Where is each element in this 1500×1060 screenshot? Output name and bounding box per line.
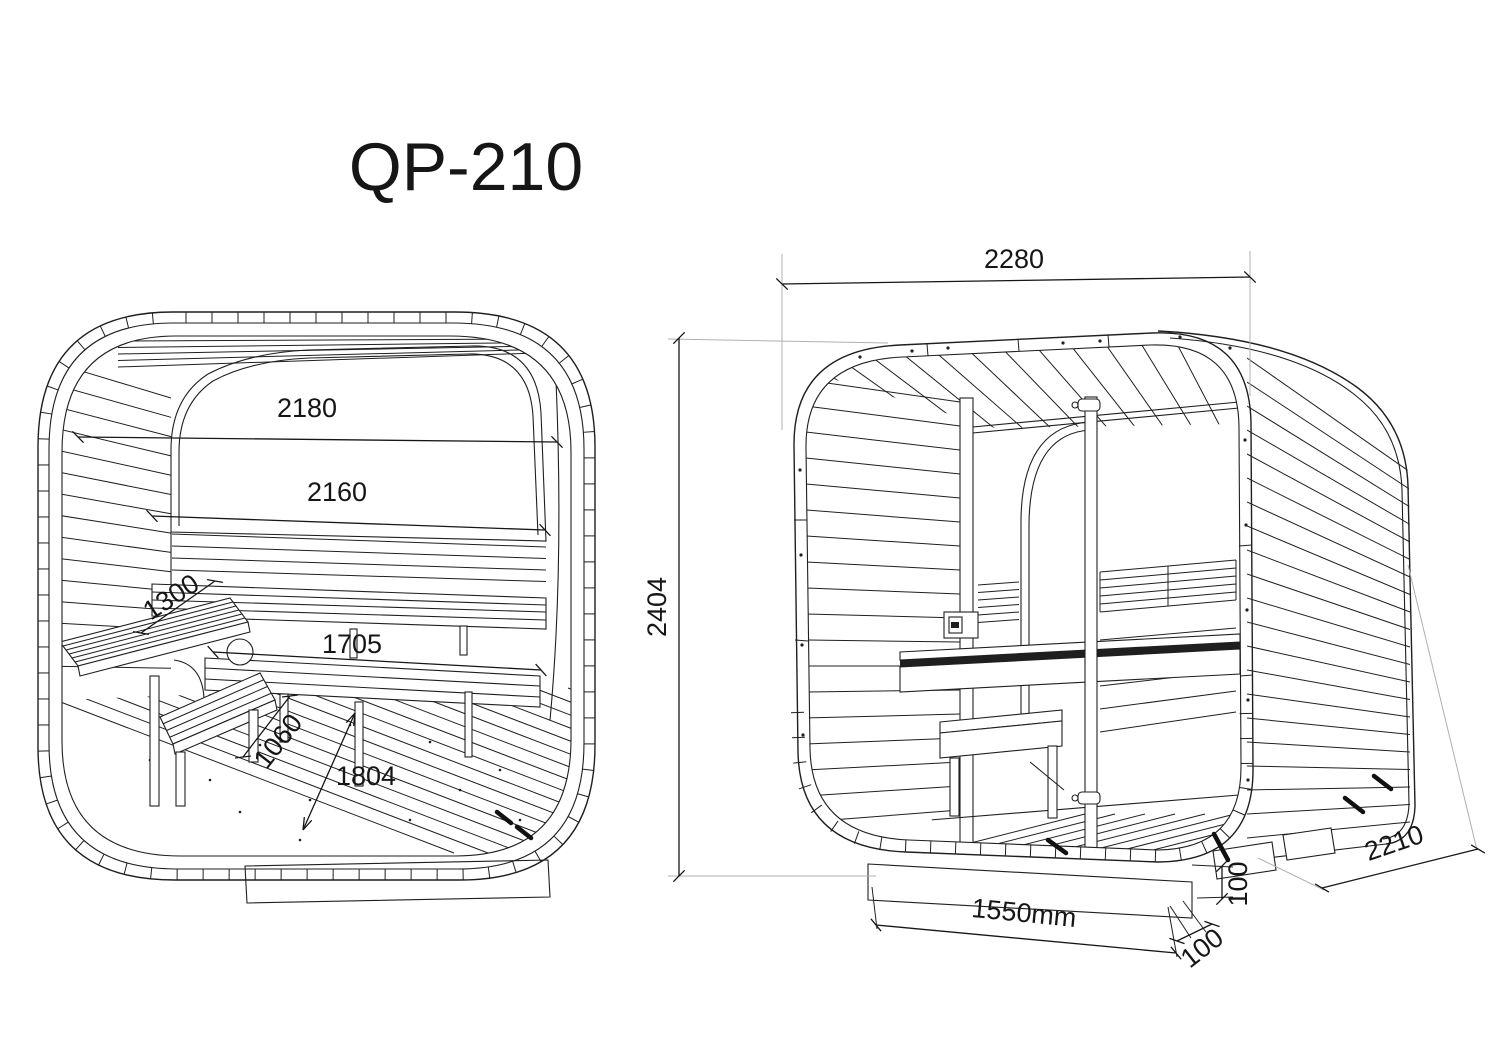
latch-icon [517,827,531,838]
bench-leg [1048,746,1057,818]
drawing-canvas: QP-210 2180 2160 1300 1705 1060 1804 228… [0,0,1500,1060]
dim-label-2280: 2280 [984,244,1044,274]
door-post [1085,397,1097,852]
dim-label-100-diagonal: 100 [1175,922,1229,973]
interior-through-glass [780,342,1445,866]
latch-hardware [497,812,531,838]
roof-edge-inner [1170,338,1402,490]
perspective-view [780,331,1445,918]
base-platform [245,860,550,903]
curved-support [174,660,204,698]
bench-support [460,626,467,655]
door-arch-outer [1021,422,1090,748]
extension-lines [668,251,1477,957]
bench-brace [1030,762,1064,790]
side-bench-leg [150,676,159,806]
window-arch-inner [179,354,538,535]
ceiling-planks [118,339,548,367]
left-wall-planks [806,380,960,822]
benches [60,584,546,806]
dim-label-1705: 1705 [322,629,382,659]
drawing-title: QP-210 [349,129,583,205]
front-ring [791,333,1253,863]
panel-separators [794,335,1253,676]
heater-circle [227,639,253,665]
benches [900,634,1240,818]
right-shell-contour [550,380,559,720]
back-edge-inner [1402,490,1409,804]
dim-label-2160: 2160 [307,477,367,507]
back-edge [1408,486,1415,806]
door-hinge-pin [1072,795,1078,801]
drawing-sheet: QP-210 2180 2160 1300 1705 1060 1804 228… [0,0,1500,1060]
dim-label-2404: 2404 [642,577,672,637]
step-leg [176,752,185,806]
backrest-rails [978,560,1236,623]
door-hinge-pin [1072,402,1078,408]
door-hinge [1078,792,1100,804]
skid-beam [1283,828,1335,860]
bench-leg [950,758,959,816]
control-unit-display [951,622,959,628]
bench-leg [465,692,472,757]
door-hinge [1078,399,1100,411]
back-wall-planks [172,534,546,582]
door-arch-inner [1029,430,1090,748]
latch-icon [497,812,511,823]
front-ring-outer [794,333,1253,862]
dim-label-100-vertical: 100 [1223,861,1253,906]
dim-label-2180: 2180 [277,393,337,423]
window-arch-outer [171,346,546,541]
dim-label-1804: 1804 [336,761,396,791]
latch-icon [1345,798,1363,812]
